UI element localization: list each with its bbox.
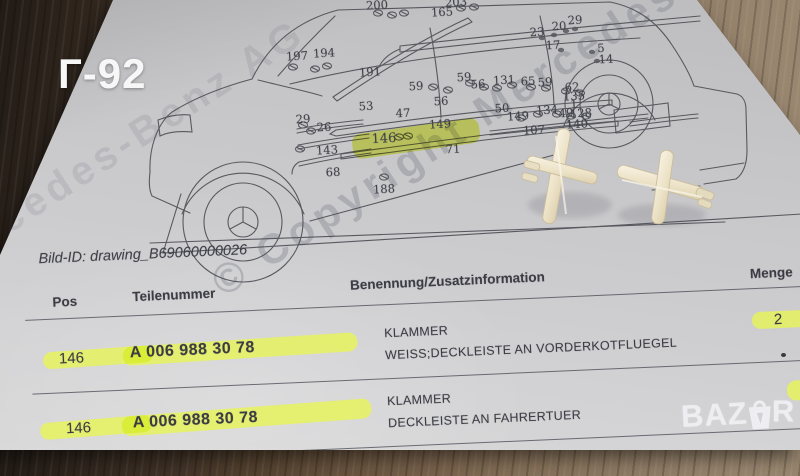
photo-canvas: { "overlay": { "corner_label": "Г-92" },… — [0, 0, 800, 450]
listing-code-label: Г-92 — [58, 50, 147, 98]
plastic-clip-right — [616, 150, 715, 226]
plastic-clip-left — [521, 128, 612, 225]
